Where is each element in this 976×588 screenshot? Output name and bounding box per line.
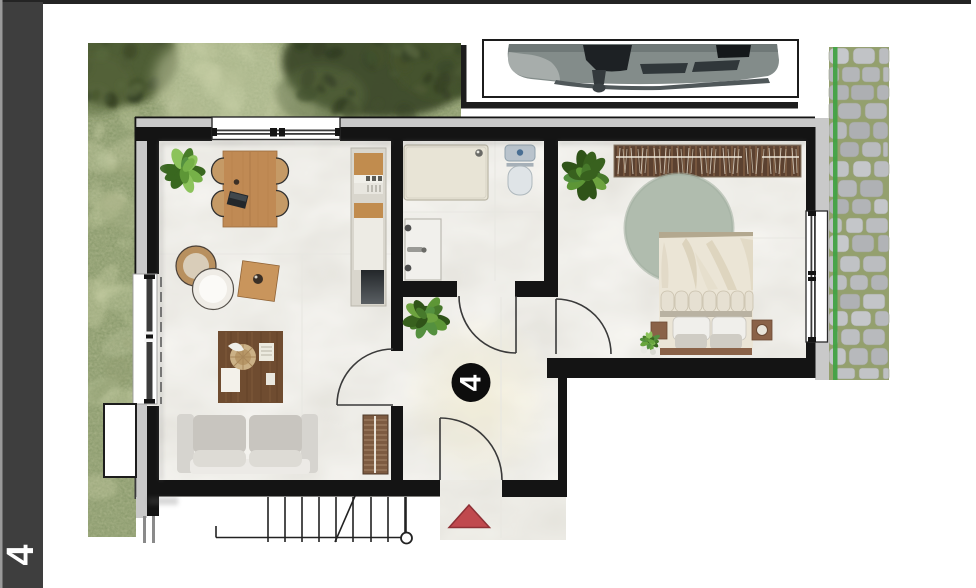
svg-text:4: 4: [455, 374, 488, 391]
svg-text:4: 4: [0, 544, 42, 565]
